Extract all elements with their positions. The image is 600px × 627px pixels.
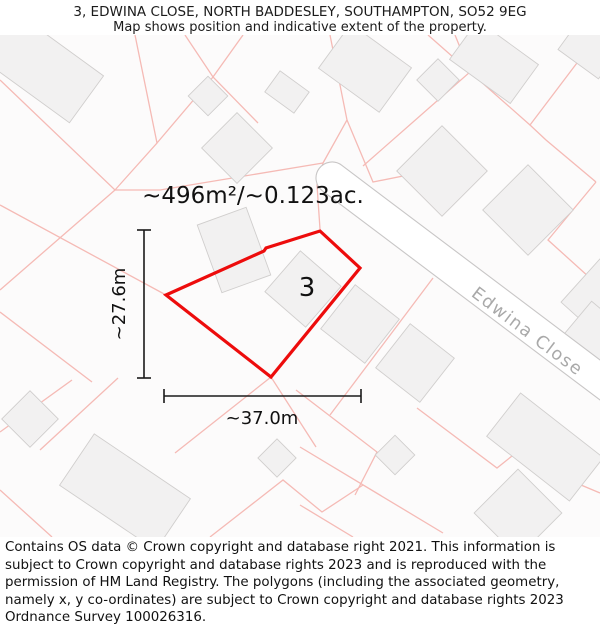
footer: Contains OS data © Crown copyright and d… [0,537,600,625]
copyright-attribution: Contains OS data © Crown copyright and d… [0,537,590,627]
page-subtitle: Map shows position and indicative extent… [0,20,600,35]
page-title: 3, EDWINA CLOSE, NORTH BADDESLEY, SOUTHA… [0,0,600,20]
height-dimension-label: ~27.6m [109,268,130,341]
property-number-label: 3 [299,273,316,303]
property-map: Edwina Close3~496m²/~0.123ac.~27.6m~37.0… [0,35,600,537]
width-dimension-label: ~37.0m [226,408,299,429]
header: 3, EDWINA CLOSE, NORTH BADDESLEY, SOUTHA… [0,0,600,35]
area-label: ~496m²/~0.123ac. [142,183,364,209]
map-canvas: Edwina Close3~496m²/~0.123ac.~27.6m~37.0… [0,35,600,537]
